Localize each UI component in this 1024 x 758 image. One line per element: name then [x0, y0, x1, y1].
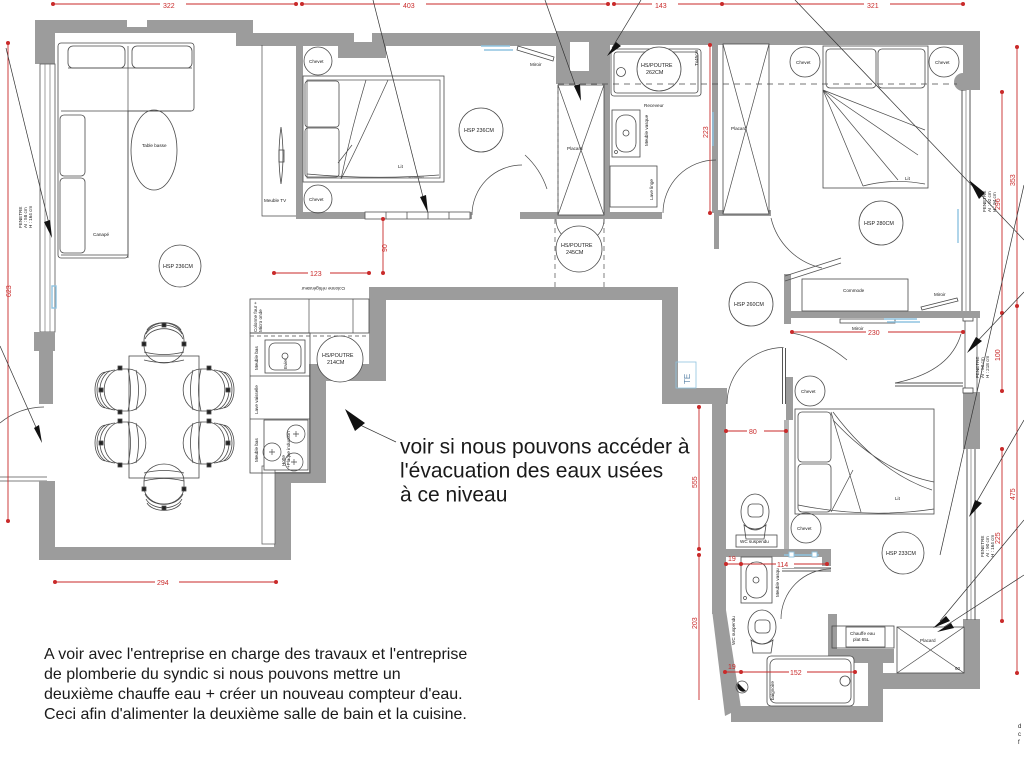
svg-text:Meuble TV: Meuble TV: [264, 198, 287, 203]
svg-text:Colonne réfrigérateur: Colonne réfrigérateur: [301, 286, 345, 291]
svg-text:Receveur: Receveur: [644, 103, 664, 108]
svg-text:c: c: [1018, 732, 1021, 738]
svg-text:HSP 260CM: HSP 260CM: [734, 302, 764, 308]
svg-text:voir si nous pouvons accéder à: voir si nous pouvons accéder à: [400, 436, 690, 459]
svg-text:Commode: Commode: [843, 288, 865, 293]
svg-text:HSP 236CM: HSP 236CM: [163, 264, 193, 270]
svg-text:555: 555: [692, 476, 699, 488]
svg-text:Meuble bas: Meuble bas: [254, 438, 259, 462]
svg-text:Lit: Lit: [895, 496, 901, 501]
svg-text:H : 164 cm: H : 164 cm: [28, 206, 33, 228]
svg-text:Meuble vasque: Meuble vasque: [644, 114, 649, 146]
svg-text:Placard: Placard: [731, 126, 747, 131]
svg-text:WC suspendu: WC suspendu: [740, 539, 769, 544]
svg-text:HSP 233CM: HSP 233CM: [886, 551, 916, 557]
svg-text:143: 143: [655, 3, 667, 10]
svg-text:Table basse: Table basse: [142, 143, 167, 148]
svg-text:HS/POUTRE: HS/POUTRE: [561, 243, 593, 249]
svg-text:à ce niveau: à ce niveau: [400, 484, 507, 507]
svg-text:Placard: Placard: [920, 638, 936, 643]
svg-text:Lave linge: Lave linge: [649, 179, 654, 200]
svg-text:294: 294: [157, 580, 169, 587]
svg-text:+Plaque induction: +Plaque induction: [286, 431, 291, 468]
svg-text:A voir avec l'entreprise en ch: A voir avec l'entreprise en charge des t…: [44, 646, 467, 663]
svg-text:Lit: Lit: [398, 164, 404, 169]
svg-text:321: 321: [867, 3, 879, 10]
svg-text:Chevet: Chevet: [935, 60, 950, 65]
svg-text:baignoire: baignoire: [770, 681, 775, 700]
svg-text:230: 230: [868, 330, 880, 337]
svg-text:Chevet: Chevet: [797, 526, 812, 531]
svg-text:623: 623: [6, 285, 13, 297]
svg-text:Miroir: Miroir: [530, 62, 542, 67]
svg-text:HS/POUTRE: HS/POUTRE: [322, 353, 354, 359]
svg-text:Miroir: Miroir: [852, 326, 864, 331]
svg-text:TE: TE: [683, 374, 692, 384]
svg-text:Miroir: Miroir: [934, 292, 946, 297]
svg-text:214CM: 214CM: [327, 360, 345, 366]
svg-text:d: d: [1018, 724, 1021, 730]
svg-text:Chauffe eau: Chauffe eau: [850, 631, 875, 636]
svg-text:deuxième chauffe eau + créer u: deuxième chauffe eau + créer un nouveau …: [44, 686, 463, 703]
svg-text:Meuble bas: Meuble bas: [254, 346, 259, 370]
svg-text:403: 403: [403, 3, 415, 10]
svg-text:WC suspendu: WC suspendu: [731, 616, 736, 645]
svg-text:l'évacuation des eaux usées: l'évacuation des eaux usées: [400, 460, 663, 483]
svg-text:19: 19: [728, 664, 736, 671]
svg-text:Tx45cm: Tx45cm: [694, 49, 699, 66]
svg-text:223: 223: [703, 126, 710, 138]
svg-text:Lave vaisselle: Lave vaisselle: [254, 385, 259, 414]
svg-text:HSP 280CM: HSP 280CM: [864, 221, 894, 227]
svg-text:90: 90: [382, 244, 389, 252]
svg-text:152: 152: [790, 670, 802, 677]
svg-text:Lit: Lit: [905, 176, 911, 181]
svg-text:245CM: 245CM: [566, 250, 584, 256]
svg-text:de plomberie du syndic si nous: de plomberie du syndic si nous pouvons m…: [44, 666, 401, 683]
svg-text:123: 123: [310, 271, 322, 278]
svg-text:Canapé: Canapé: [93, 232, 110, 237]
svg-text:plat 65L: plat 65L: [853, 637, 870, 642]
svg-text:H : 218 cm: H : 218 cm: [985, 356, 990, 378]
svg-text:Placard: Placard: [567, 146, 583, 151]
svg-text:100: 100: [995, 349, 1002, 361]
svg-text:HS/POUTRE: HS/POUTRE: [641, 63, 673, 69]
svg-text:19: 19: [728, 556, 736, 563]
svg-text:Chevet: Chevet: [796, 60, 811, 65]
svg-text:Chevet: Chevet: [309, 59, 324, 64]
svg-text:Evier: Evier: [283, 358, 288, 369]
svg-text:80: 80: [749, 429, 757, 436]
svg-text:262CM: 262CM: [646, 70, 664, 76]
svg-text:Ceci afin d'alimenter la deuxi: Ceci afin d'alimenter la deuxième salle …: [44, 706, 467, 723]
svg-text:114: 114: [777, 562, 788, 569]
svg-text:475: 475: [1010, 488, 1017, 500]
svg-text:322: 322: [163, 3, 175, 10]
svg-text:Micro onde: Micro onde: [258, 309, 263, 332]
svg-text:Chevet: Chevet: [801, 389, 816, 394]
svg-text:H : 164 cm: H : 164 cm: [990, 535, 995, 557]
svg-text:HSP 236CM: HSP 236CM: [464, 128, 494, 134]
svg-text:60: 60: [955, 666, 961, 671]
svg-text:repose pied: repose pied: [408, 175, 424, 179]
svg-text:Meuble vasque: Meuble vasque: [775, 565, 780, 597]
svg-text:225: 225: [995, 532, 1002, 544]
svg-text:Chevet: Chevet: [309, 197, 324, 202]
svg-text:203: 203: [692, 617, 699, 629]
svg-text:353: 353: [1010, 174, 1017, 186]
